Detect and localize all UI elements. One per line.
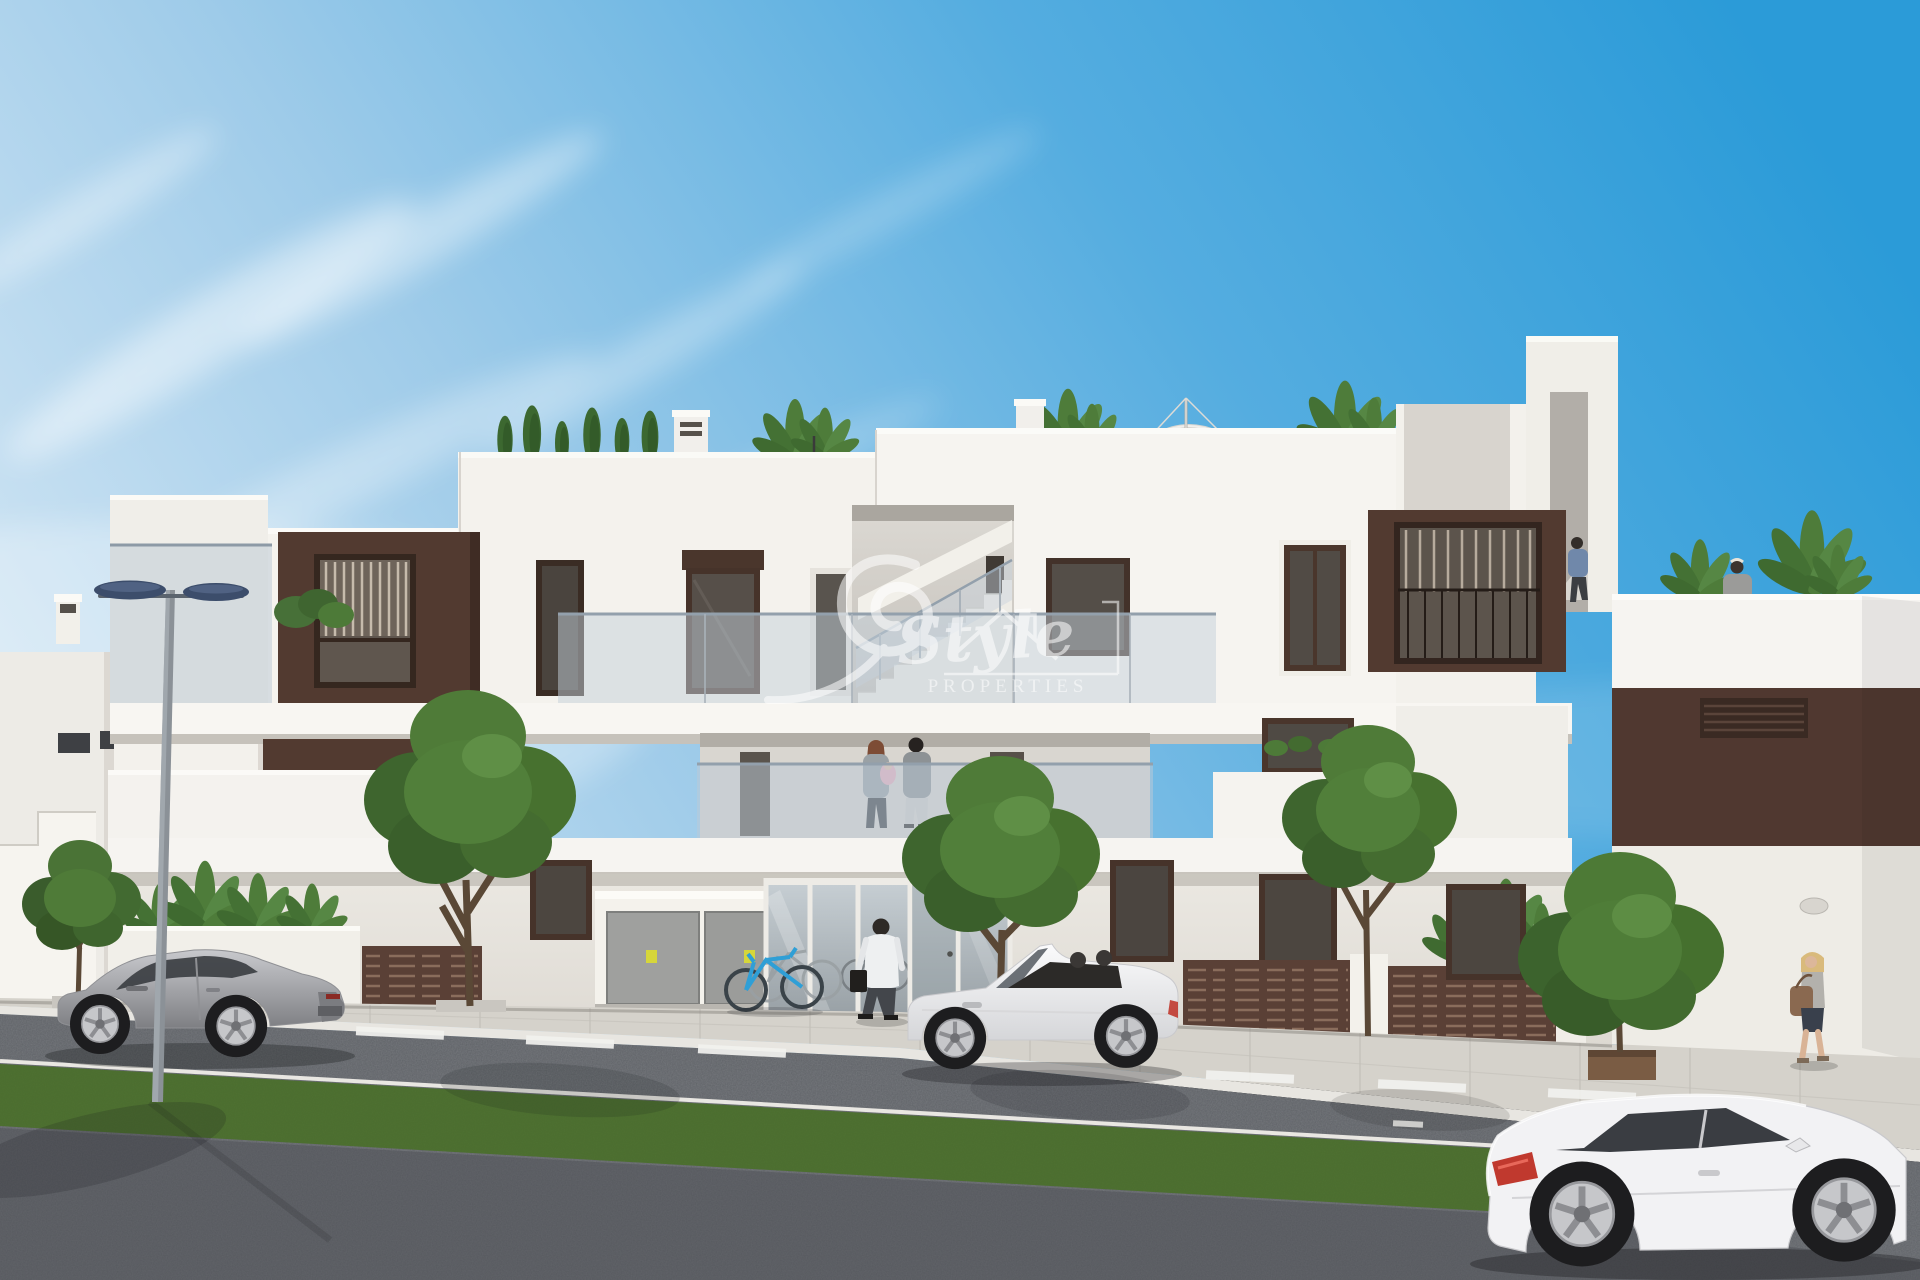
window-d bbox=[1279, 540, 1351, 676]
wheel-rear bbox=[1530, 1162, 1635, 1267]
ac-grille bbox=[1700, 698, 1808, 738]
briefcase bbox=[850, 970, 867, 992]
render-viewport: Style PROPERTIES bbox=[0, 0, 1920, 1280]
skirt bbox=[1801, 1008, 1824, 1032]
ground-window-4 bbox=[1446, 884, 1526, 980]
wheel-front bbox=[70, 994, 130, 1054]
watermark-tagline-text: PROPERTIES bbox=[928, 676, 1089, 697]
upper-terrace-glass-left bbox=[110, 545, 272, 707]
privacy-fence-2 bbox=[1183, 960, 1353, 1034]
ground-window-2 bbox=[1110, 860, 1174, 962]
wheel-rear bbox=[205, 995, 267, 1057]
ground-window-3 bbox=[1259, 874, 1337, 968]
brown-accent-box-window bbox=[1368, 510, 1566, 672]
wheel-front bbox=[924, 1007, 986, 1069]
wheel-rear bbox=[1094, 1004, 1158, 1068]
door-handle bbox=[1698, 1170, 1720, 1176]
wheel-front bbox=[1792, 1158, 1895, 1261]
watermark-brand-text: Style bbox=[895, 596, 1077, 680]
ground-window-1 bbox=[530, 860, 592, 940]
far-left-building bbox=[0, 652, 118, 1008]
warning-sticker bbox=[646, 950, 657, 963]
shirt bbox=[864, 934, 899, 989]
wall-lamp bbox=[1800, 898, 1828, 914]
small-window bbox=[58, 733, 90, 753]
taillight bbox=[326, 994, 340, 999]
chimney bbox=[56, 596, 80, 644]
